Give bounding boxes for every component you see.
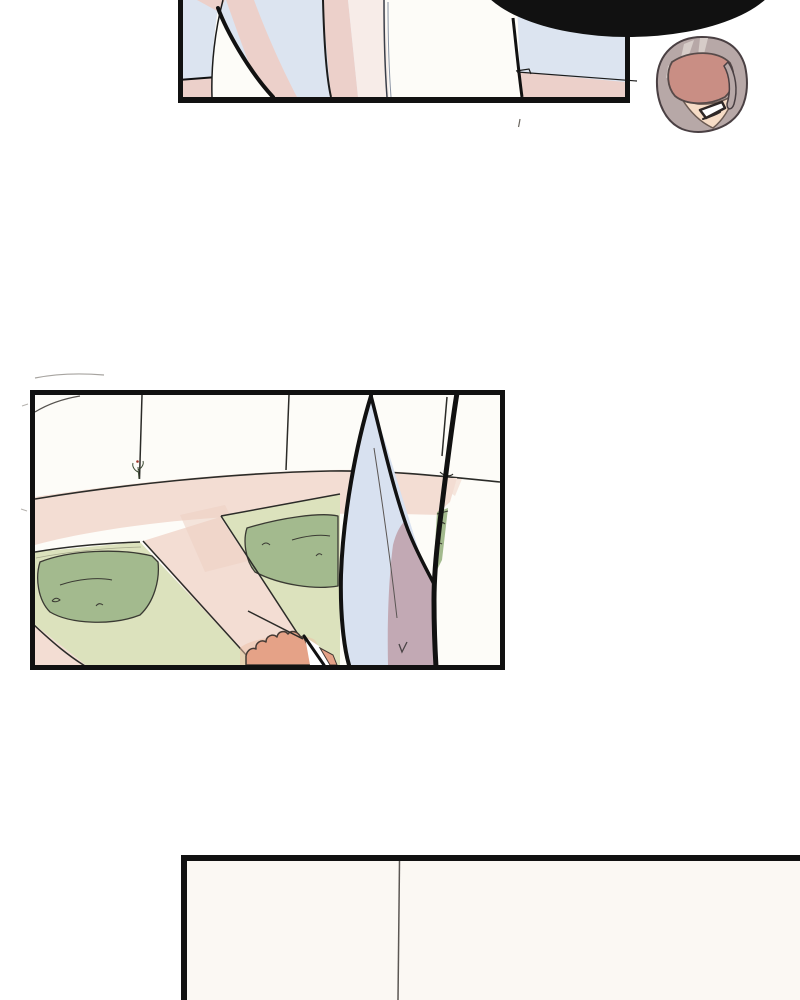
stray-tick xyxy=(519,119,521,127)
stray-tick xyxy=(21,509,27,511)
hedge xyxy=(38,551,159,622)
webtoon-page xyxy=(0,0,800,1000)
comic-artwork xyxy=(0,0,800,1000)
character-head xyxy=(657,37,747,132)
eye-shadow-fringe xyxy=(668,53,733,103)
stray-line xyxy=(35,374,104,378)
panel-garden xyxy=(21,374,505,670)
stray-tick xyxy=(22,404,28,406)
panel-bottom xyxy=(181,855,800,1000)
